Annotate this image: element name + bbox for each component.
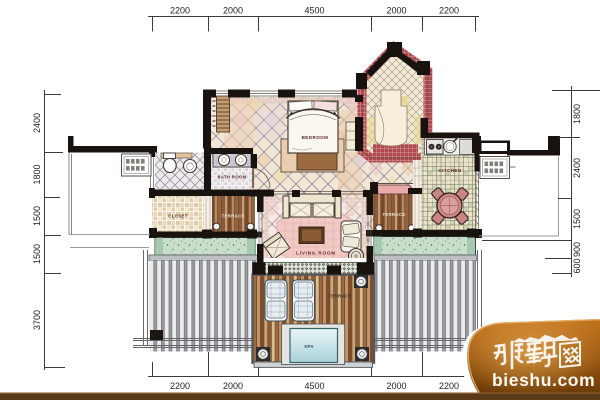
svg-text:2200: 2200: [439, 6, 459, 16]
svg-text:BATH ROOM: BATH ROOM: [217, 175, 246, 180]
svg-text:3700: 3700: [32, 310, 42, 330]
svg-text:2400: 2400: [32, 113, 42, 133]
svg-text:SPA: SPA: [304, 344, 314, 349]
svg-text:2000: 2000: [386, 381, 406, 391]
svg-text:4500: 4500: [304, 381, 324, 391]
svg-text:2200: 2200: [170, 381, 190, 391]
svg-text:KITCHEN: KITCHEN: [438, 168, 461, 173]
svg-text:TERRACE: TERRACE: [221, 214, 244, 219]
svg-text:TERRACE: TERRACE: [328, 294, 351, 299]
svg-text:2200: 2200: [170, 6, 190, 16]
svg-text:BEDROOM: BEDROOM: [302, 135, 329, 140]
svg-text:600: 600: [572, 258, 582, 273]
svg-text:4500: 4500: [304, 6, 324, 16]
svg-text:1500: 1500: [32, 206, 42, 226]
svg-text:CLOSET: CLOSET: [168, 214, 187, 219]
svg-text:2000: 2000: [223, 381, 243, 391]
svg-text:1800: 1800: [32, 164, 42, 184]
svg-text:900: 900: [572, 242, 582, 257]
svg-text:bieshu.com: bieshu.com: [492, 370, 595, 390]
svg-text:TERRACE: TERRACE: [382, 212, 405, 217]
svg-text:1500: 1500: [572, 209, 582, 229]
svg-text:2000: 2000: [223, 6, 243, 16]
svg-text:1800: 1800: [572, 104, 582, 124]
svg-text:2200: 2200: [439, 381, 459, 391]
svg-text:2400: 2400: [572, 158, 582, 178]
svg-text:2000: 2000: [386, 6, 406, 16]
svg-text:LIVING ROOM: LIVING ROOM: [296, 251, 336, 256]
svg-text:1500: 1500: [32, 244, 42, 264]
